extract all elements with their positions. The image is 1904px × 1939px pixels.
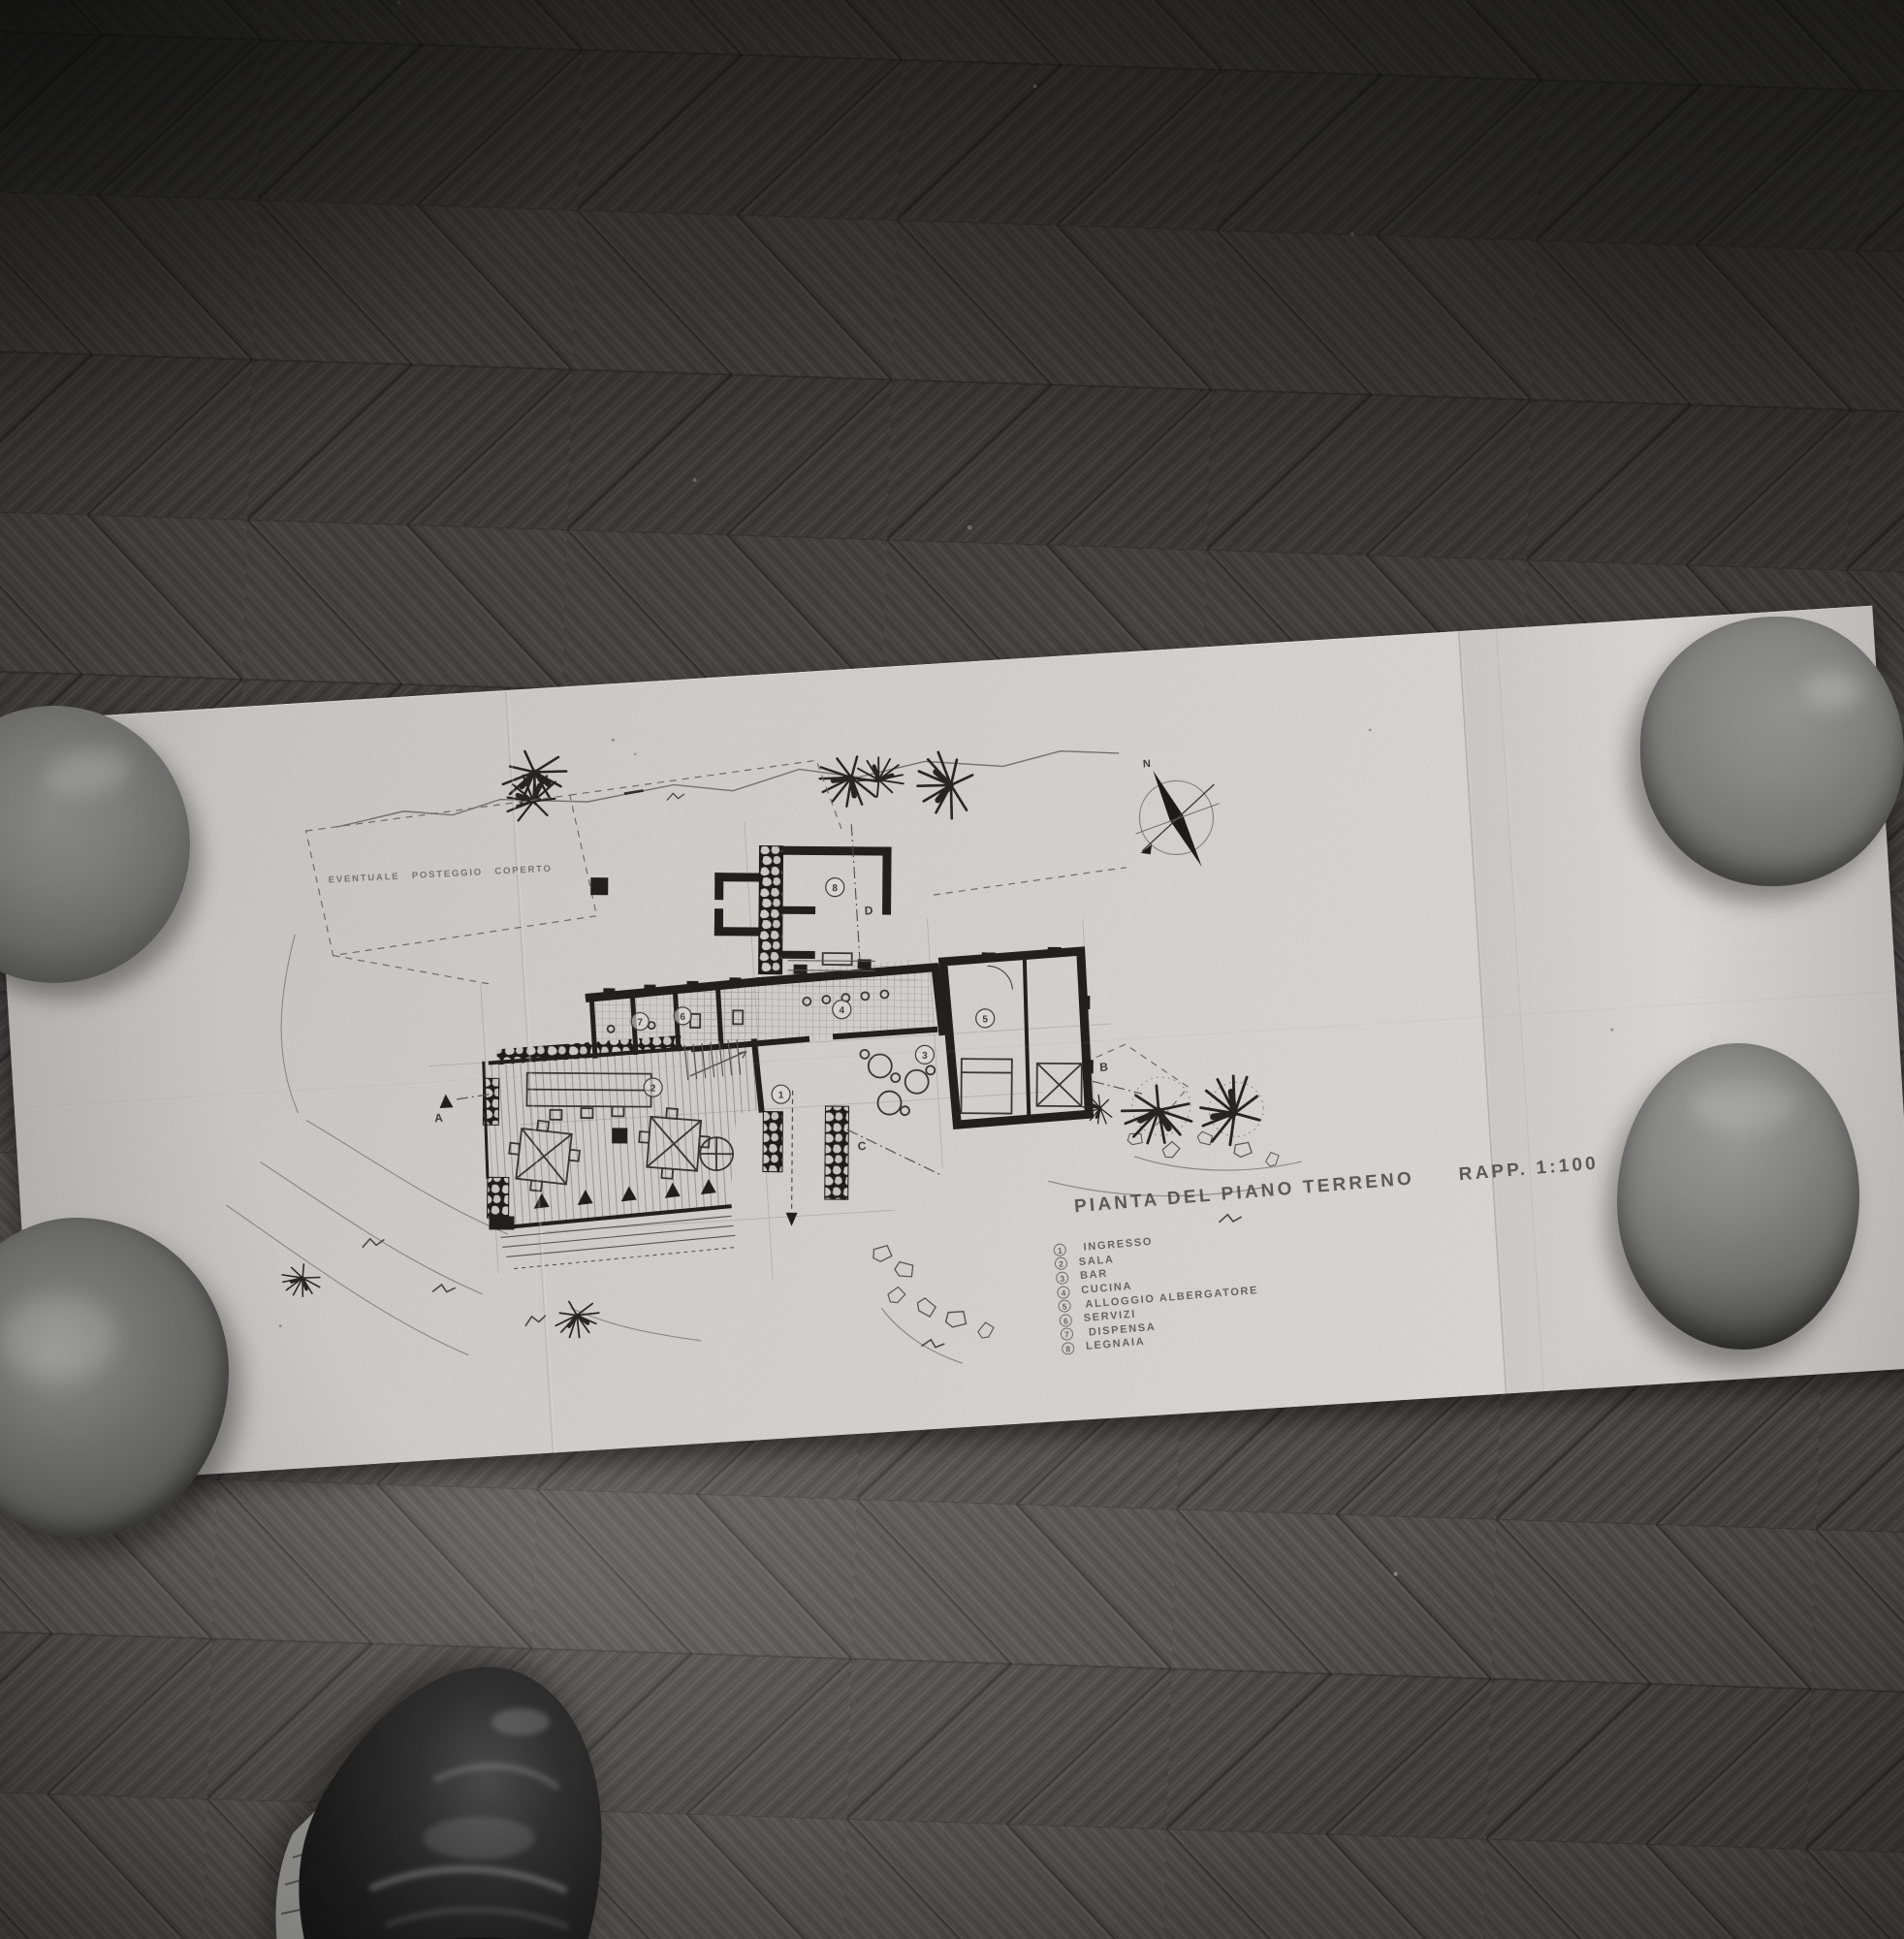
specular-highlight <box>1804 671 1862 710</box>
legend-number: 7 <box>1060 1327 1073 1341</box>
room-bubble: 2 <box>644 1078 662 1097</box>
legend-number: 6 <box>1059 1314 1072 1327</box>
svg-text:8: 8 <box>832 883 838 894</box>
legend-number: 4 <box>1057 1286 1070 1299</box>
svg-text:1: 1 <box>778 1091 784 1101</box>
plan-legend: 1INGRESSO 2SALA 3BAR 4CUCINA 5ALLOGGIO A… <box>1053 1226 1262 1356</box>
specular-highlight <box>1690 1080 1796 1130</box>
section-marker-c: C <box>857 1139 867 1154</box>
building-plan <box>482 843 1095 1273</box>
paperweight-bowl-top-right <box>1640 617 1904 886</box>
legend-number: 8 <box>1062 1342 1075 1355</box>
room-bubble: 5 <box>976 1009 995 1028</box>
legend-number: 2 <box>1054 1257 1067 1271</box>
room-bubble: 3 <box>915 1045 934 1064</box>
compass-north-label: N <box>1143 758 1152 770</box>
photo-scene: N A B C D 1 2 3 4 5 6 7 <box>0 0 1904 1939</box>
entry-path <box>792 1091 793 1209</box>
floor-plan-drawing: N A B C D 1 2 3 4 5 6 7 <box>0 606 1904 1485</box>
specular-highlight <box>0 1294 116 1382</box>
svg-text:6: 6 <box>680 1012 685 1023</box>
terrain-sketch-top <box>333 709 1123 861</box>
section-marker-b: B <box>1099 1060 1109 1074</box>
room-bubble: 4 <box>833 1001 851 1019</box>
svg-text:2: 2 <box>651 1084 656 1095</box>
svg-text:5: 5 <box>982 1014 988 1025</box>
shoe-upper <box>300 1667 602 1939</box>
shoe-shape <box>225 1635 632 1939</box>
trees-right <box>1075 1061 1278 1166</box>
specular-highlight <box>40 742 135 804</box>
paperweight-bowl-right <box>1617 1043 1859 1350</box>
legend-number: 3 <box>1056 1271 1069 1285</box>
architectural-drawing-sheet: N A B C D 1 2 3 4 5 6 7 <box>0 606 1904 1485</box>
svg-text:3: 3 <box>922 1051 928 1062</box>
section-marker-d: D <box>864 904 873 918</box>
legend-label: BAR <box>1080 1268 1109 1282</box>
svg-text:7: 7 <box>637 1018 643 1029</box>
legend-number: 5 <box>1058 1299 1071 1313</box>
svg-text:4: 4 <box>839 1005 844 1016</box>
legend-number: 1 <box>1053 1243 1066 1256</box>
room-bubble: 1 <box>772 1085 790 1103</box>
room-bubble: 8 <box>826 878 844 897</box>
section-marker-a: A <box>434 1111 444 1126</box>
compass-rose-icon: N <box>1131 754 1223 871</box>
leather-shoe-toe <box>225 1635 632 1939</box>
room-bubble: 7 <box>631 1012 649 1030</box>
room-bubble: 6 <box>674 1007 691 1025</box>
